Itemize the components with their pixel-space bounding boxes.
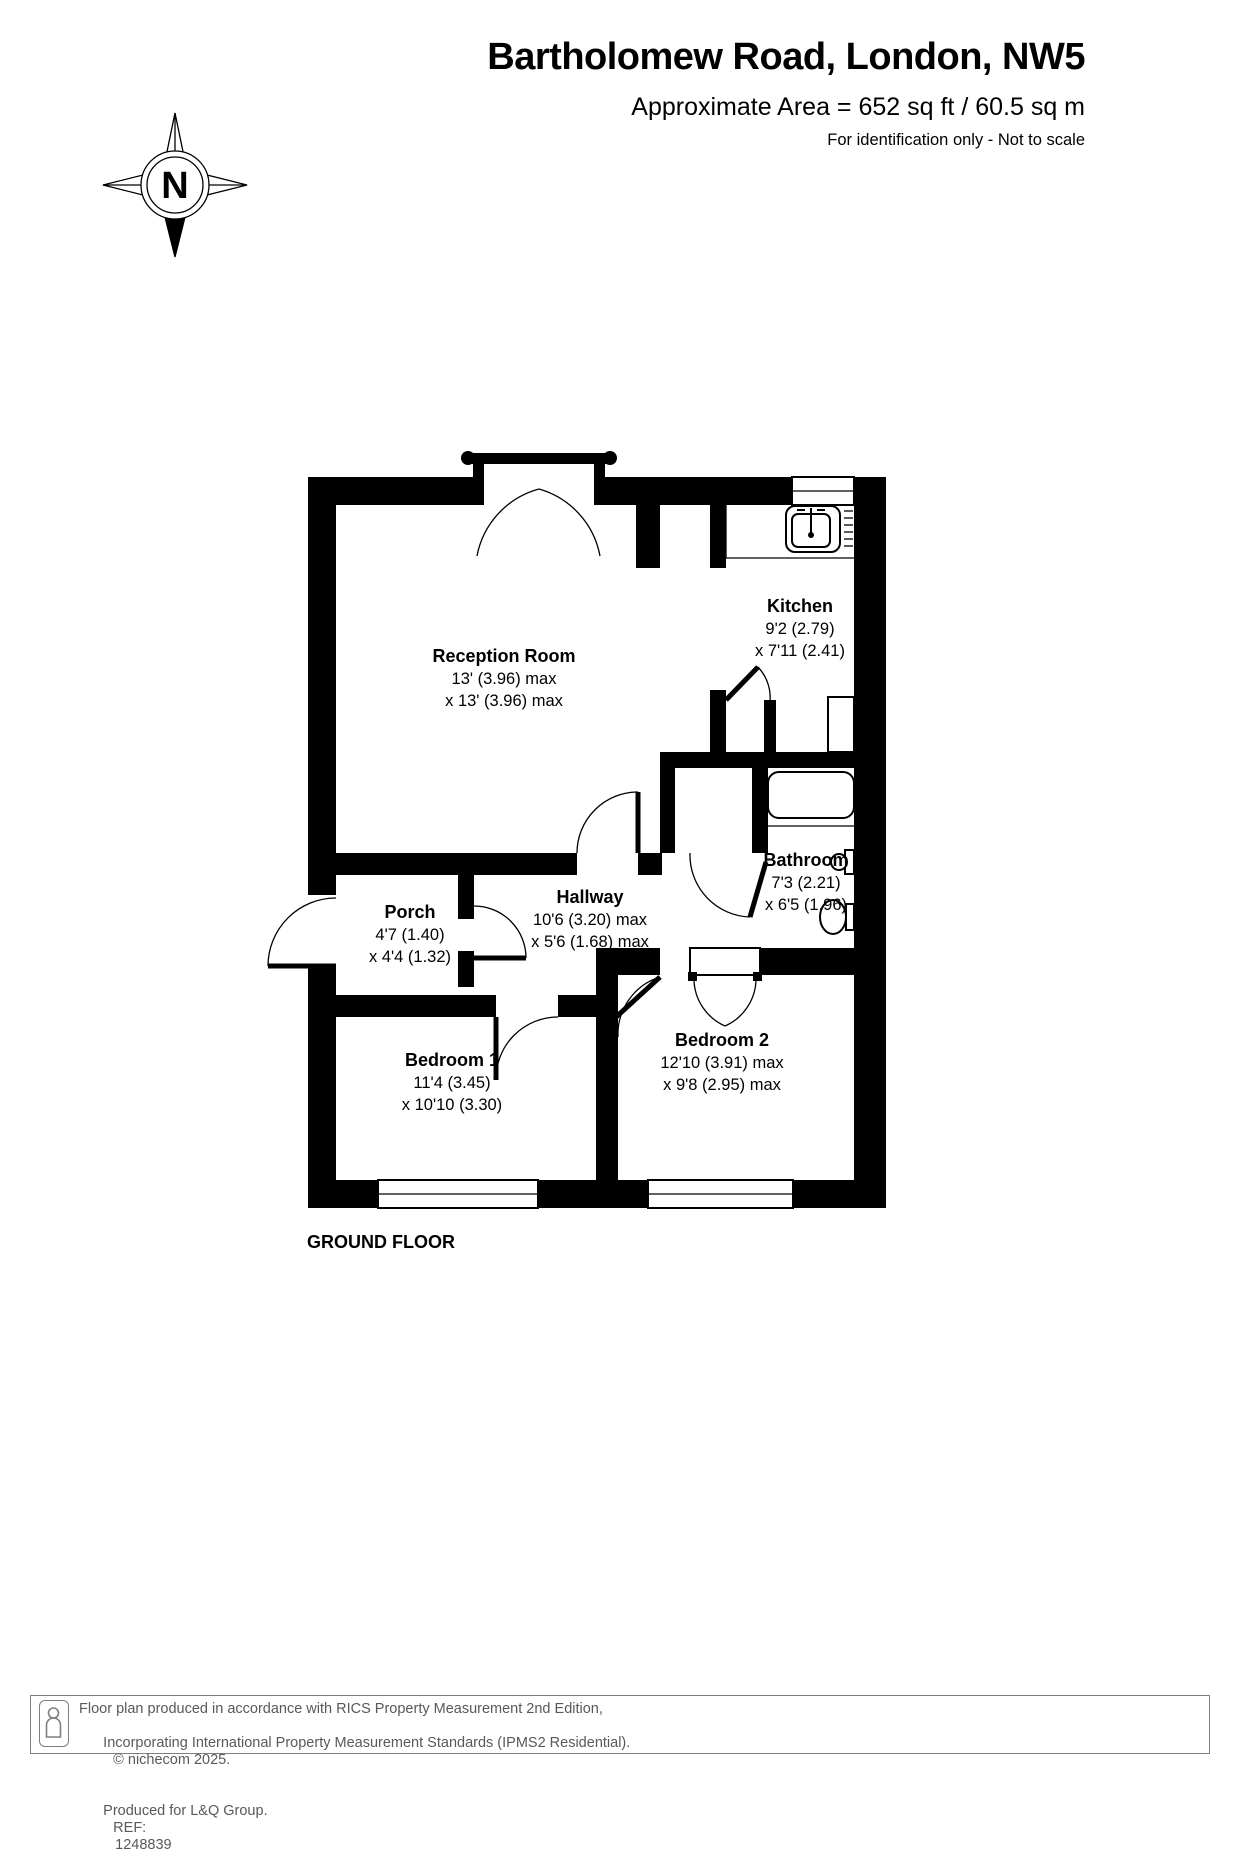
copyright-text: © nichecom 2025. [113,1752,230,1768]
bathtub-icon [766,772,854,826]
sink-drainer-icon [844,511,853,546]
porch-entrance-door-icon [268,898,336,966]
reception-door-icon [577,792,638,853]
room-label-bedroom1: Bedroom 1 11'4 (3.45) x 10'10 (3.30) [402,1050,502,1114]
bathroom-dim2: x 6'5 (1.96) [765,896,847,914]
room-label-bathroom: Bathroom 7'3 (2.21) x 6'5 (1.96) [764,850,849,914]
kitchen-counter-icon [828,697,854,752]
floor-plan: Reception Room 13' (3.96) max x 13' (3.9… [240,390,930,1290]
footer-line1: Floor plan produced in accordance with R… [79,1701,630,1718]
porch-dim1: 4'7 (1.40) [375,926,444,944]
bedroom2-door-icon [615,977,660,1037]
bedroom2-window-icon [648,1180,793,1208]
compass-north-label: N [161,165,188,207]
kitchen-dim1: 9'2 (2.79) [765,620,834,638]
bathroom-door-icon [690,853,766,917]
room-label-reception: Reception Room 13' (3.96) max x 13' (3.9… [432,646,575,710]
kitchen-dim2: x 7'11 (2.41) [755,642,845,660]
room-label-porch: Porch 4'7 (1.40) x 4'4 (1.32) [369,902,451,966]
porch-name: Porch [384,902,435,922]
reception-dim2: x 13' (3.96) max [445,692,564,710]
reception-name: Reception Room [432,646,575,666]
bathroom-name: Bathroom [764,850,849,870]
bedroom1-door-icon [496,1017,558,1080]
bedroom2-dim1: 12'10 (3.91) max [660,1054,784,1072]
person-icon [39,1700,69,1747]
porch-hallway-door-icon [474,906,526,958]
bedroom2-dim2: x 9'8 (2.95) max [663,1076,782,1094]
room-label-hallway: Hallway 10'6 (3.20) max x 5'6 (1.68) max [531,887,650,951]
hallway-name: Hallway [556,887,623,907]
kitchen-door-icon [726,667,770,702]
footer-text: Floor plan produced in accordance with R… [79,1701,630,1871]
room-label-kitchen: Kitchen 9'2 (2.79) x 7'11 (2.41) [755,596,845,660]
bedroom2-name: Bedroom 2 [675,1030,769,1050]
compass-icon: N [95,105,255,265]
kitchen-name: Kitchen [767,596,833,616]
french-doors-icon [461,451,617,556]
footer-line3: Produced for L&Q Group. REF: 1248839 [79,1786,630,1871]
identification-note: For identification only - Not to scale [487,131,1085,150]
footer-ipms-text: Incorporating International Property Mea… [103,1735,630,1751]
bedroom1-dim1: 11'4 (3.45) [413,1074,490,1092]
room-label-bedroom2: Bedroom 2 12'10 (3.91) max x 9'8 (2.95) … [660,1030,784,1094]
kitchen-sink-icon [726,505,854,558]
compass-rose: N [95,105,255,270]
page-title: Bartholomew Road, London, NW5 [487,36,1085,79]
floor-title: GROUND FLOOR [307,1232,455,1252]
footer-line2: Incorporating International Property Mea… [79,1718,630,1786]
kitchen-window-icon [792,477,854,505]
bedroom1-dim2: x 10'10 (3.30) [402,1096,502,1114]
bedroom2-french-window-icon [688,948,762,1026]
bedroom1-window-icon [378,1180,538,1208]
bathroom-dim1: 7'3 (2.21) [771,874,840,892]
ref-value: 1248839 [115,1837,171,1853]
ref-label: REF: [113,1820,146,1836]
header: Bartholomew Road, London, NW5 Approximat… [487,36,1085,150]
hallway-dim1: 10'6 (3.20) max [533,911,648,929]
footer: Floor plan produced in accordance with R… [30,1695,1210,1754]
porch-dim2: x 4'4 (1.32) [369,948,451,966]
hallway-dim2: x 5'6 (1.68) max [531,933,650,951]
bedroom1-name: Bedroom 1 [405,1050,499,1070]
produced-for-text: Produced for L&Q Group. [103,1803,267,1819]
approximate-area: Approximate Area = 652 sq ft / 60.5 sq m [487,93,1085,122]
reception-dim1: 13' (3.96) max [452,670,558,688]
